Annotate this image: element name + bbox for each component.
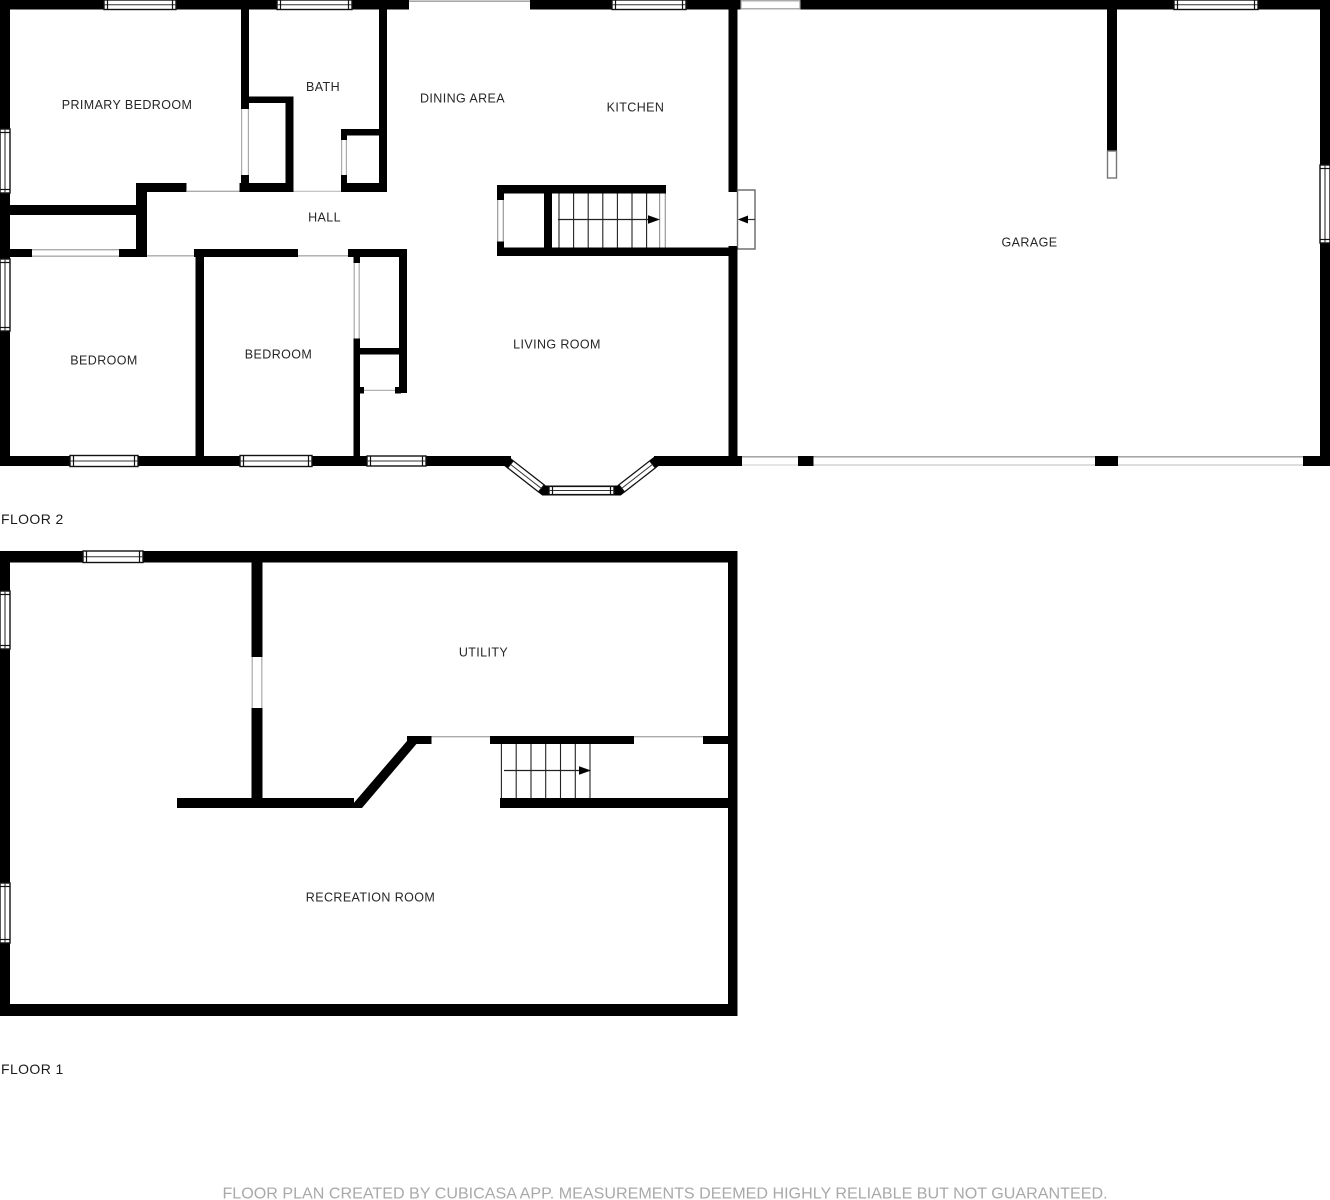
svg-text:BEDROOM: BEDROOM xyxy=(245,348,312,362)
svg-text:GARAGE: GARAGE xyxy=(1002,236,1058,250)
svg-text:BATH: BATH xyxy=(306,80,340,94)
svg-text:FLOOR PLAN CREATED BY CUBICASA: FLOOR PLAN CREATED BY CUBICASA APP. MEAS… xyxy=(222,1185,1107,1200)
svg-text:FLOOR 2: FLOOR 2 xyxy=(1,511,64,527)
svg-text:PRIMARY BEDROOM: PRIMARY BEDROOM xyxy=(62,98,193,112)
svg-text:KITCHEN: KITCHEN xyxy=(607,101,665,115)
svg-text:FLOOR 1: FLOOR 1 xyxy=(1,1061,64,1077)
svg-text:DINING AREA: DINING AREA xyxy=(420,92,505,106)
svg-text:UTILITY: UTILITY xyxy=(459,646,509,660)
svg-text:RECREATION ROOM: RECREATION ROOM xyxy=(306,891,435,905)
svg-text:BEDROOM: BEDROOM xyxy=(70,354,137,368)
svg-text:LIVING ROOM: LIVING ROOM xyxy=(513,338,601,352)
svg-text:HALL: HALL xyxy=(308,211,341,225)
